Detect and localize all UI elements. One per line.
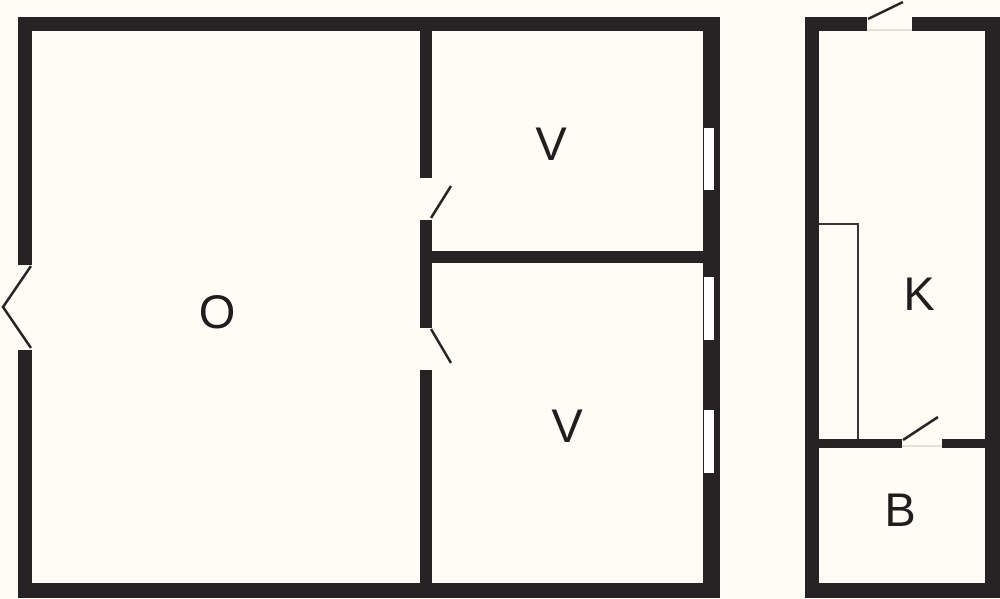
room-label-bathroom: B	[884, 483, 915, 536]
annex-wall-right	[985, 17, 1000, 598]
main-interior-wall-vertical	[420, 31, 432, 583]
room-label-bedroom-lower: V	[551, 399, 583, 452]
room-label-kitchen: K	[903, 267, 934, 320]
window-icon	[704, 410, 714, 473]
interior-door-opening-upper	[419, 178, 433, 220]
floorplan-canvas: O V V K B	[0, 0, 1000, 599]
floorplan-svg: O V V K B	[0, 0, 1000, 599]
plan-background	[0, 0, 1000, 599]
room-label-bedroom-upper: V	[535, 117, 567, 170]
interior-door-opening-lower	[419, 328, 433, 370]
annex-wall-bottom	[805, 583, 1000, 598]
main-windows	[704, 128, 714, 473]
window-icon	[704, 128, 714, 190]
bathroom-door-opening	[902, 438, 942, 449]
annex-interior-wall	[805, 439, 985, 448]
main-wall-top	[18, 17, 720, 31]
window-icon	[704, 277, 714, 340]
main-interior-wall-horizontal	[426, 251, 703, 263]
main-wall-bottom	[18, 583, 720, 598]
annex-wall-left	[805, 17, 819, 598]
room-label-living: O	[199, 285, 236, 338]
